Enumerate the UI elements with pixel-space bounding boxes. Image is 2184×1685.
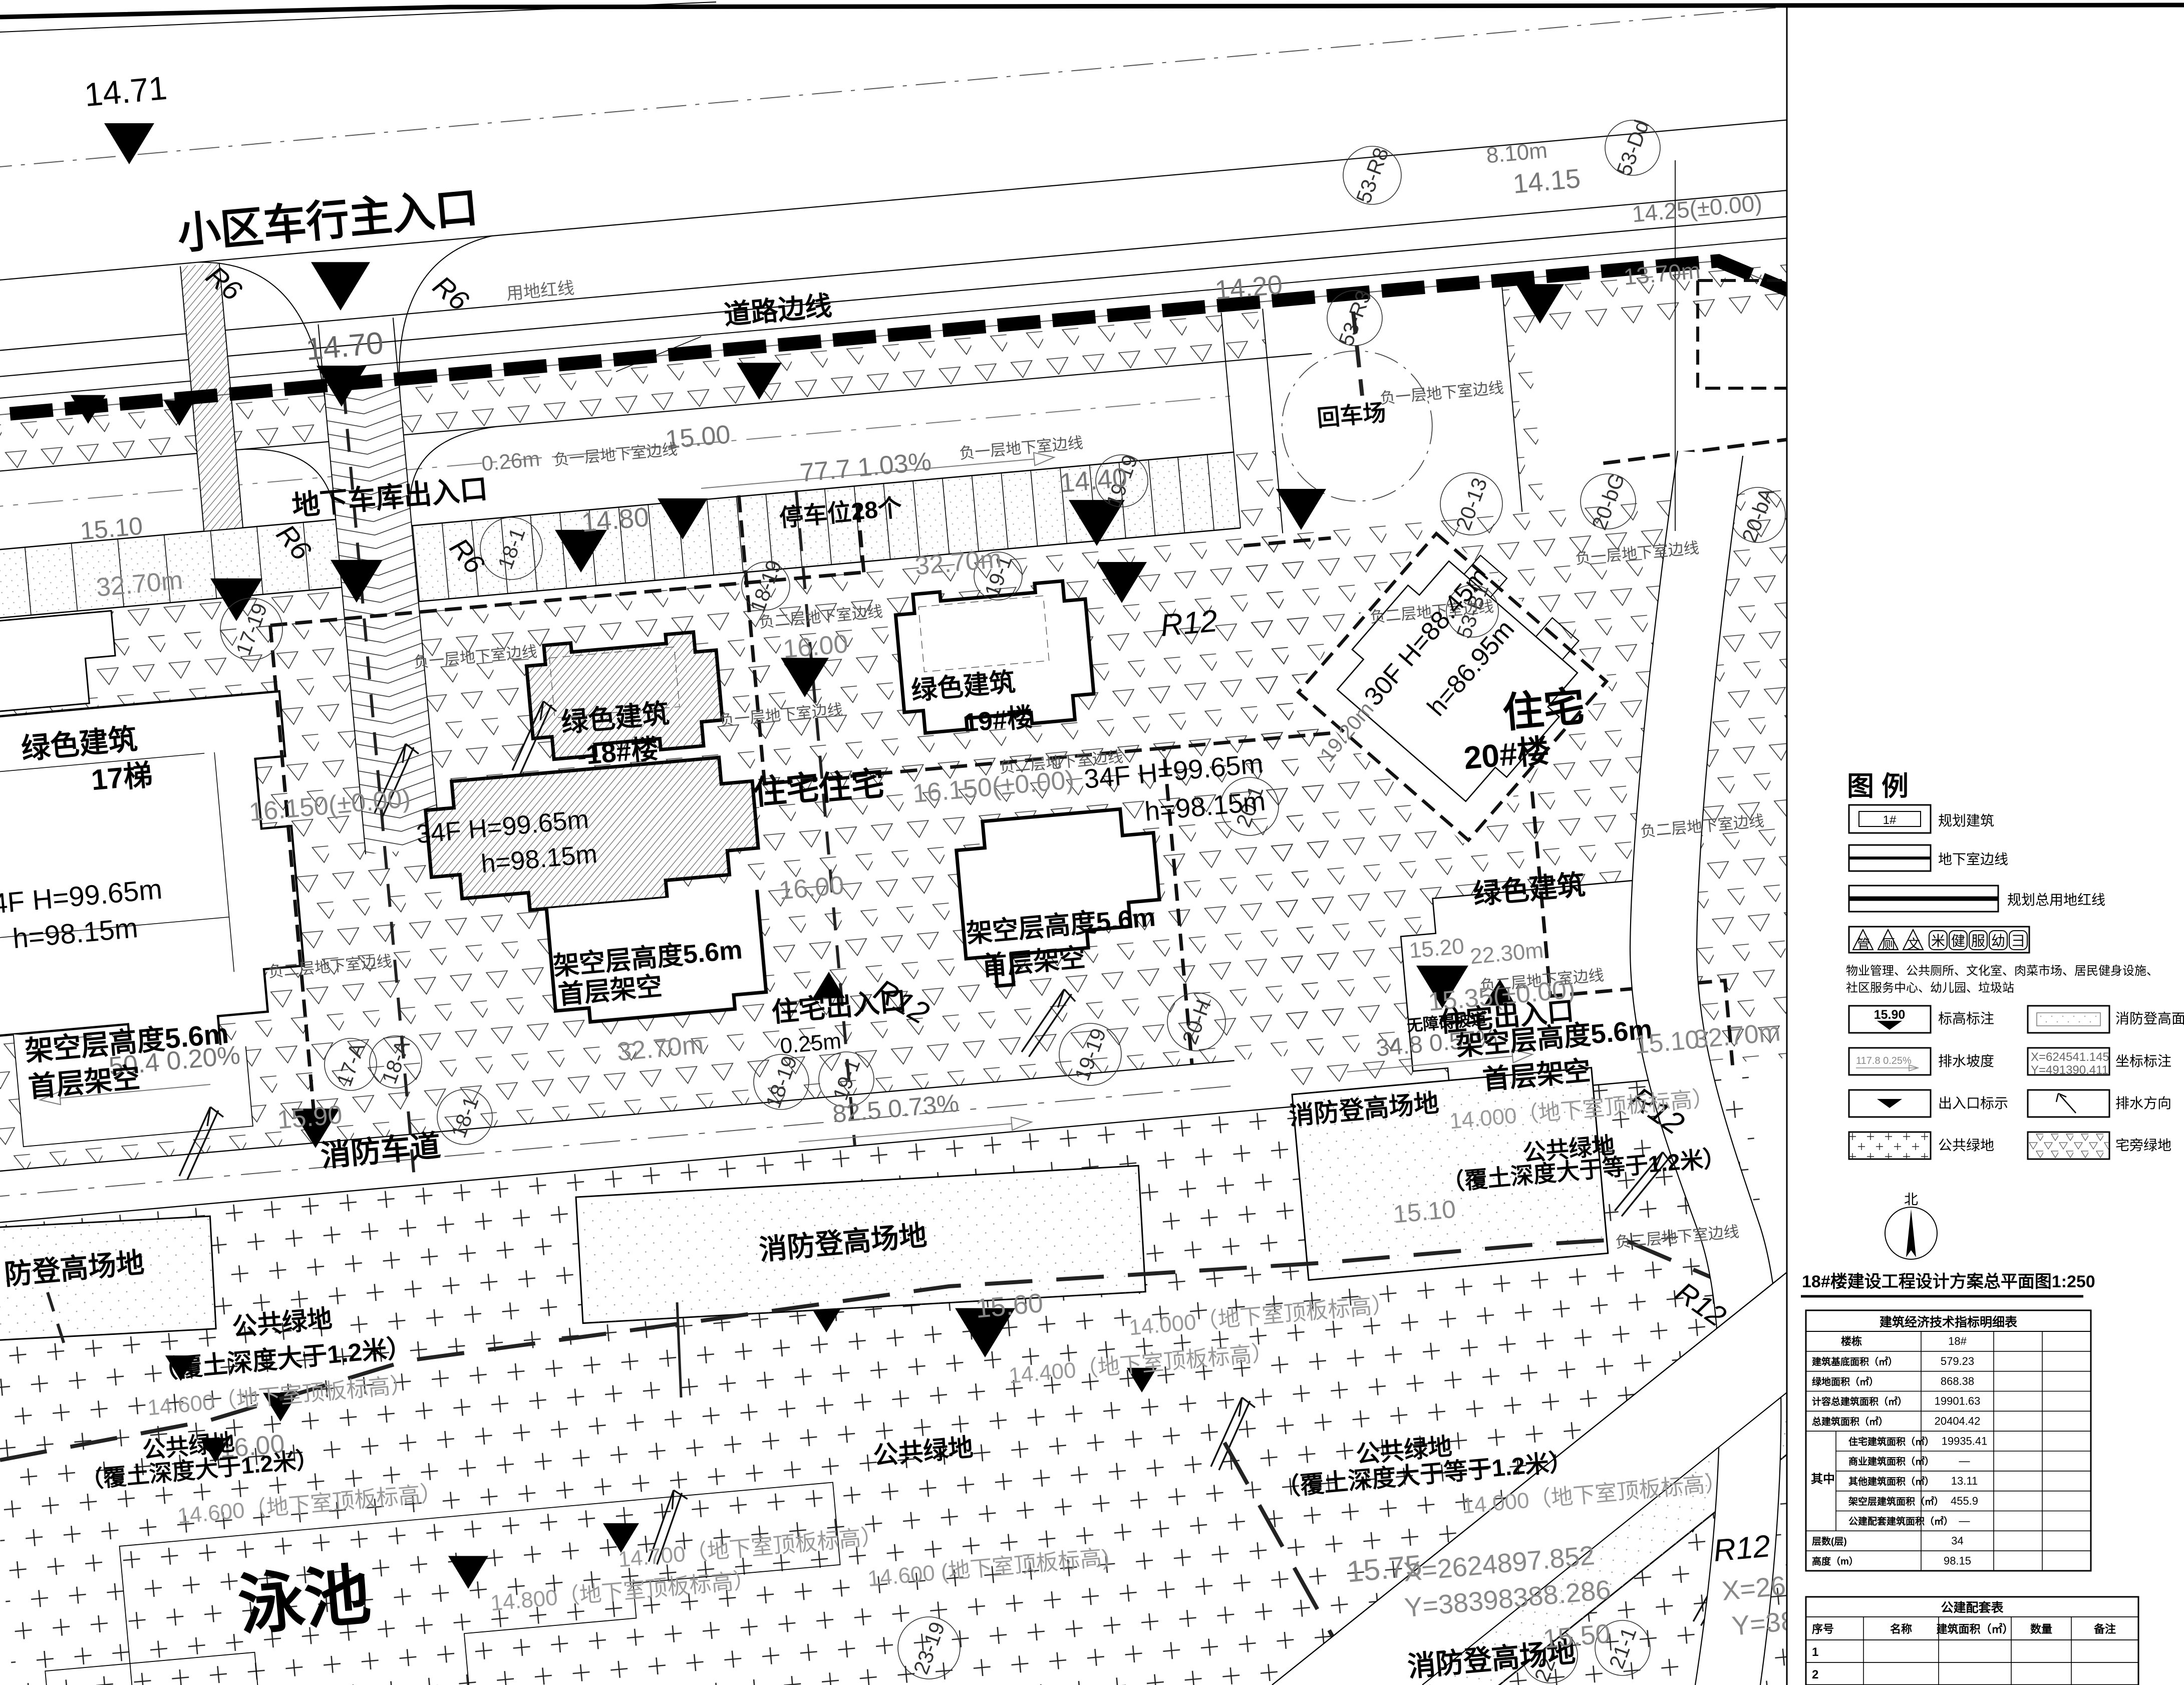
- svg-text:幼: 幼: [1991, 933, 2005, 949]
- svg-text:排水坡度: 排水坡度: [1938, 1053, 1994, 1069]
- svg-text:总建筑面积（㎡）: 总建筑面积（㎡）: [1812, 1416, 1888, 1427]
- svg-text:公建配套建筑面积（㎡）: 公建配套建筑面积（㎡）: [1848, 1516, 1953, 1527]
- svg-text:18#: 18#: [1948, 1335, 1967, 1347]
- svg-text:其中: 其中: [1811, 1473, 1835, 1486]
- svg-text:17梯: 17梯: [90, 759, 154, 797]
- svg-text:14.20: 14.20: [1213, 269, 1284, 306]
- svg-text:名称: 名称: [1890, 1623, 1912, 1635]
- svg-text:15.90: 15.90: [276, 1100, 344, 1135]
- svg-text:1#: 1#: [1883, 813, 1897, 827]
- svg-text:14.71: 14.71: [83, 69, 168, 113]
- svg-text:排水方向: 排水方向: [2115, 1095, 2171, 1111]
- svg-text:住宅: 住宅: [817, 764, 886, 807]
- svg-text:117.8 0.25%: 117.8 0.25%: [1856, 1055, 1912, 1066]
- svg-text:备注: 备注: [2093, 1623, 2116, 1635]
- svg-text:泳池: 泳池: [235, 1558, 374, 1643]
- svg-text:物业管理、公共厕所、文化室、肉菜市场、居民健身设施、: 物业管理、公共厕所、文化室、肉菜市场、居民健身设施、: [1846, 964, 2158, 978]
- svg-text:社区服务中心、幼儿园、垃圾站: 社区服务中心、幼儿园、垃圾站: [1846, 981, 2014, 995]
- svg-text:14.40: 14.40: [1058, 462, 1128, 498]
- svg-text:楼栋: 楼栋: [1841, 1335, 1862, 1347]
- svg-text:13.11: 13.11: [1951, 1475, 1978, 1487]
- svg-text:20#楼: 20#楼: [1462, 733, 1551, 776]
- svg-text:建筑经济技术指标明细表: 建筑经济技术指标明细表: [1880, 1315, 2018, 1329]
- svg-text:规划总用地红线: 规划总用地红线: [2007, 892, 2105, 908]
- svg-text:—: —: [1959, 1455, 1970, 1467]
- svg-text:地下室边线: 地下室边线: [1938, 852, 2008, 867]
- svg-text:455.9: 455.9: [1951, 1495, 1978, 1507]
- svg-text:15.10: 15.10: [79, 512, 144, 545]
- svg-text:19#楼: 19#楼: [963, 703, 1034, 738]
- svg-text:R12: R12: [1159, 604, 1218, 643]
- svg-text:计容总建筑面积（㎡）: 计容总建筑面积（㎡）: [1812, 1396, 1907, 1408]
- svg-text:18#楼建设工程设计方案总平面图1:250: 18#楼建设工程设计方案总平面图1:250: [1802, 1272, 2095, 1291]
- svg-text:2: 2: [1812, 1668, 1818, 1681]
- svg-text:坐标标注: 坐标标注: [2115, 1053, 2171, 1069]
- svg-text:绿地面积（㎡）: 绿地面积（㎡）: [1812, 1376, 1879, 1387]
- svg-text:消防登高面: 消防登高面: [2115, 1011, 2184, 1026]
- svg-text:管: 管: [1857, 937, 1870, 952]
- svg-text:868.38: 868.38: [1941, 1375, 1974, 1387]
- svg-text:层数(层): 层数(层): [1812, 1535, 1847, 1547]
- svg-text:14.80: 14.80: [580, 502, 650, 538]
- svg-text:98.15: 98.15: [1944, 1554, 1971, 1567]
- svg-text:579.23: 579.23: [1941, 1355, 1974, 1367]
- svg-text:米: 米: [1931, 933, 1945, 949]
- svg-text:公共绿地: 公共绿地: [1938, 1138, 1994, 1153]
- svg-text:1: 1: [1812, 1645, 1818, 1659]
- svg-text:19935.41: 19935.41: [1942, 1435, 1988, 1447]
- svg-text:厕: 厕: [1882, 937, 1895, 952]
- svg-text:住宅: 住宅: [1501, 684, 1587, 736]
- svg-text:宅旁绿地: 宅旁绿地: [2115, 1138, 2171, 1153]
- svg-text:出入口标示: 出入口标示: [1938, 1095, 2008, 1111]
- svg-text:建筑面积（㎡）: 建筑面积（㎡）: [1936, 1623, 2013, 1635]
- svg-text:15.90: 15.90: [1874, 1008, 1906, 1022]
- svg-text:16.00: 16.00: [782, 629, 849, 664]
- svg-text:建筑基底面积（㎡）: 建筑基底面积（㎡）: [1812, 1356, 1898, 1367]
- svg-text:15.20: 15.20: [1408, 934, 1465, 963]
- svg-text:15.10: 15.10: [1392, 1195, 1457, 1229]
- svg-text:规划建筑: 规划建筑: [1938, 813, 1994, 828]
- svg-text:15.50: 15.50: [1541, 1618, 1612, 1654]
- svg-text:架空层建筑面积（㎡）: 架空层建筑面积（㎡）: [1848, 1496, 1944, 1507]
- svg-text:16.00: 16.00: [778, 871, 845, 905]
- svg-text:Y=491390.411: Y=491390.411: [2031, 1063, 2108, 1077]
- svg-text:R12: R12: [1712, 1529, 1771, 1568]
- svg-text:19901.63: 19901.63: [1935, 1395, 1981, 1408]
- svg-text:彐: 彐: [2011, 933, 2025, 949]
- svg-text:数量: 数量: [2030, 1623, 2052, 1635]
- svg-text:20404.42: 20404.42: [1935, 1415, 1981, 1427]
- svg-text:15.60: 15.60: [974, 1288, 1044, 1324]
- svg-text:序号: 序号: [1812, 1623, 1834, 1635]
- svg-text:健: 健: [1951, 933, 1965, 949]
- svg-text:14.15: 14.15: [1511, 163, 1582, 199]
- svg-text:住宅: 住宅: [752, 768, 821, 811]
- svg-text:15.10: 15.10: [1633, 1025, 1701, 1059]
- svg-text:标高标注: 标高标注: [1938, 1011, 1994, 1026]
- svg-text:—: —: [1959, 1515, 1970, 1527]
- svg-text:文: 文: [1907, 937, 1920, 952]
- svg-text:X=624541.145: X=624541.145: [2031, 1050, 2109, 1064]
- svg-text:14.70: 14.70: [304, 326, 385, 367]
- svg-text:高度（m）: 高度（m）: [1812, 1555, 1858, 1567]
- svg-text:图 例: 图 例: [1847, 771, 1909, 801]
- svg-text:公建配套表: 公建配套表: [1941, 1601, 2004, 1615]
- svg-text:服: 服: [1971, 933, 1985, 949]
- svg-text:北: 北: [1904, 1192, 1918, 1207]
- svg-text:34: 34: [1951, 1534, 1963, 1547]
